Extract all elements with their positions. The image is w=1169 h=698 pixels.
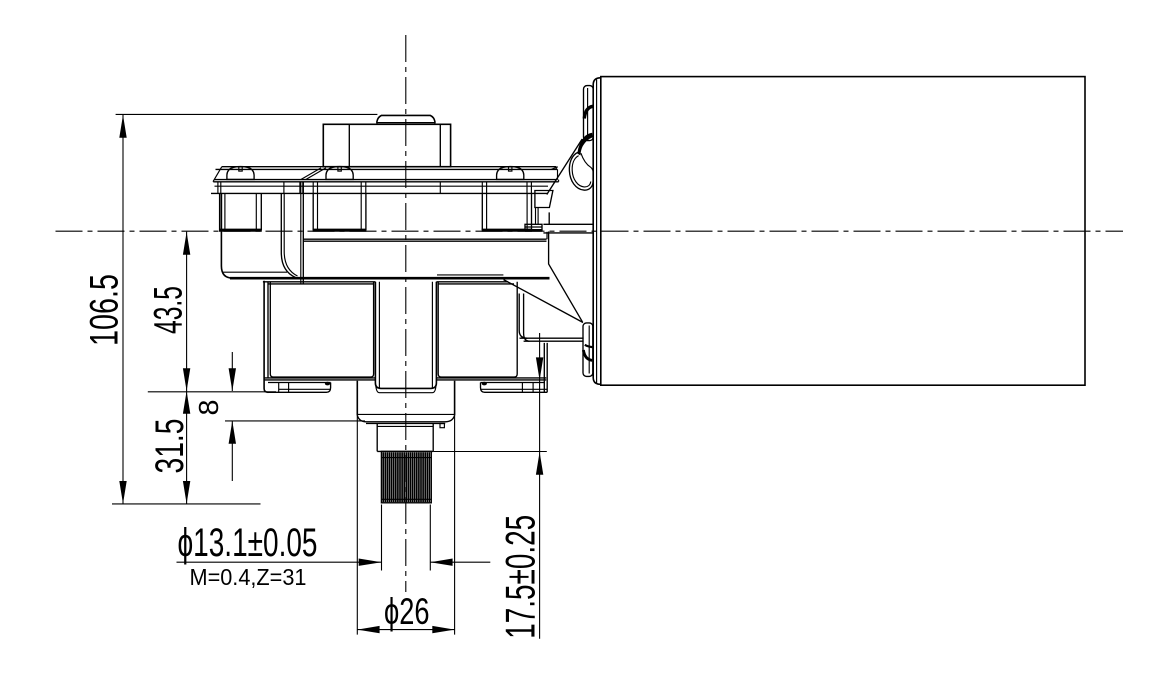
svg-text:8: 8 [193,400,224,416]
svg-text:31.5: 31.5 [148,419,192,474]
svg-text:106.5: 106.5 [83,274,127,346]
svg-text:ϕ13.1±0.05: ϕ13.1±0.05 [178,521,318,565]
svg-text:17.5±0.25: 17.5±0.25 [497,515,544,639]
svg-text:M=0.4,Z=31: M=0.4,Z=31 [190,564,307,590]
svg-text:ϕ26: ϕ26 [384,591,430,632]
svg-text:43.5: 43.5 [147,286,191,334]
